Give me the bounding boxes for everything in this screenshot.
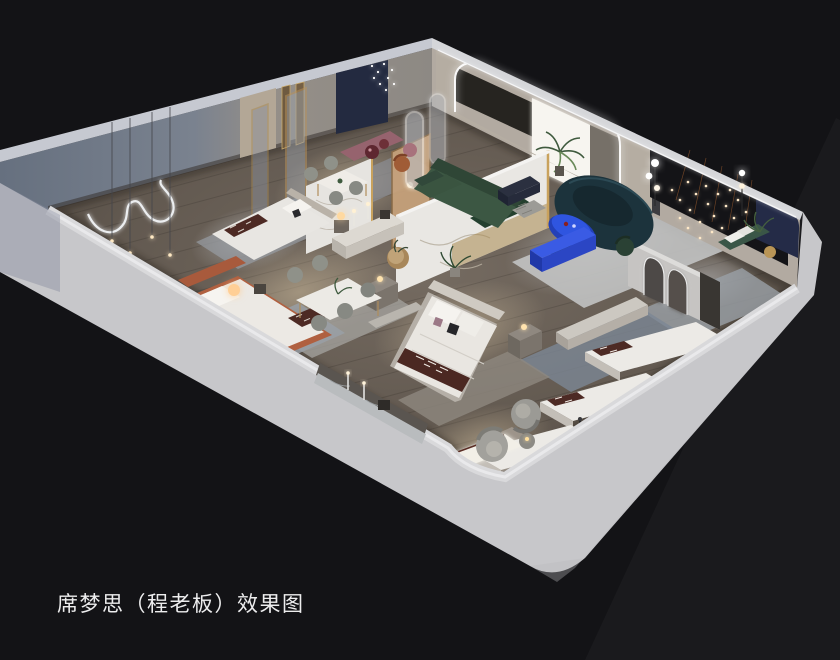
nightstand <box>334 220 349 233</box>
dining-chair <box>337 303 353 319</box>
glow-lamp <box>337 212 345 220</box>
dining-chair <box>311 315 327 331</box>
showroom-render: 席梦思（程老板）效果图 <box>0 0 840 660</box>
glow-orb-lamp <box>228 284 240 296</box>
navy-curtain <box>336 60 388 134</box>
dining-chair <box>324 156 338 170</box>
caption: 席梦思（程老板）效果图 <box>57 588 305 618</box>
dining-chair <box>287 267 303 283</box>
doorway-opening <box>700 272 720 330</box>
dining-chair <box>312 255 328 271</box>
dining-chair <box>361 283 376 298</box>
candle-light <box>525 437 529 441</box>
round-side-table <box>365 145 379 159</box>
render-canvas <box>0 0 840 660</box>
side-table <box>254 284 266 294</box>
pill-led-mirror <box>430 94 445 164</box>
slim-table-lamp <box>362 381 366 385</box>
round-side-table <box>379 139 389 149</box>
dining-chair <box>329 191 343 205</box>
dining-chair <box>304 167 318 181</box>
dark-box <box>378 400 390 410</box>
gold-side-table <box>764 246 776 258</box>
slim-table-lamp <box>346 371 350 375</box>
dining-chair <box>349 181 363 195</box>
